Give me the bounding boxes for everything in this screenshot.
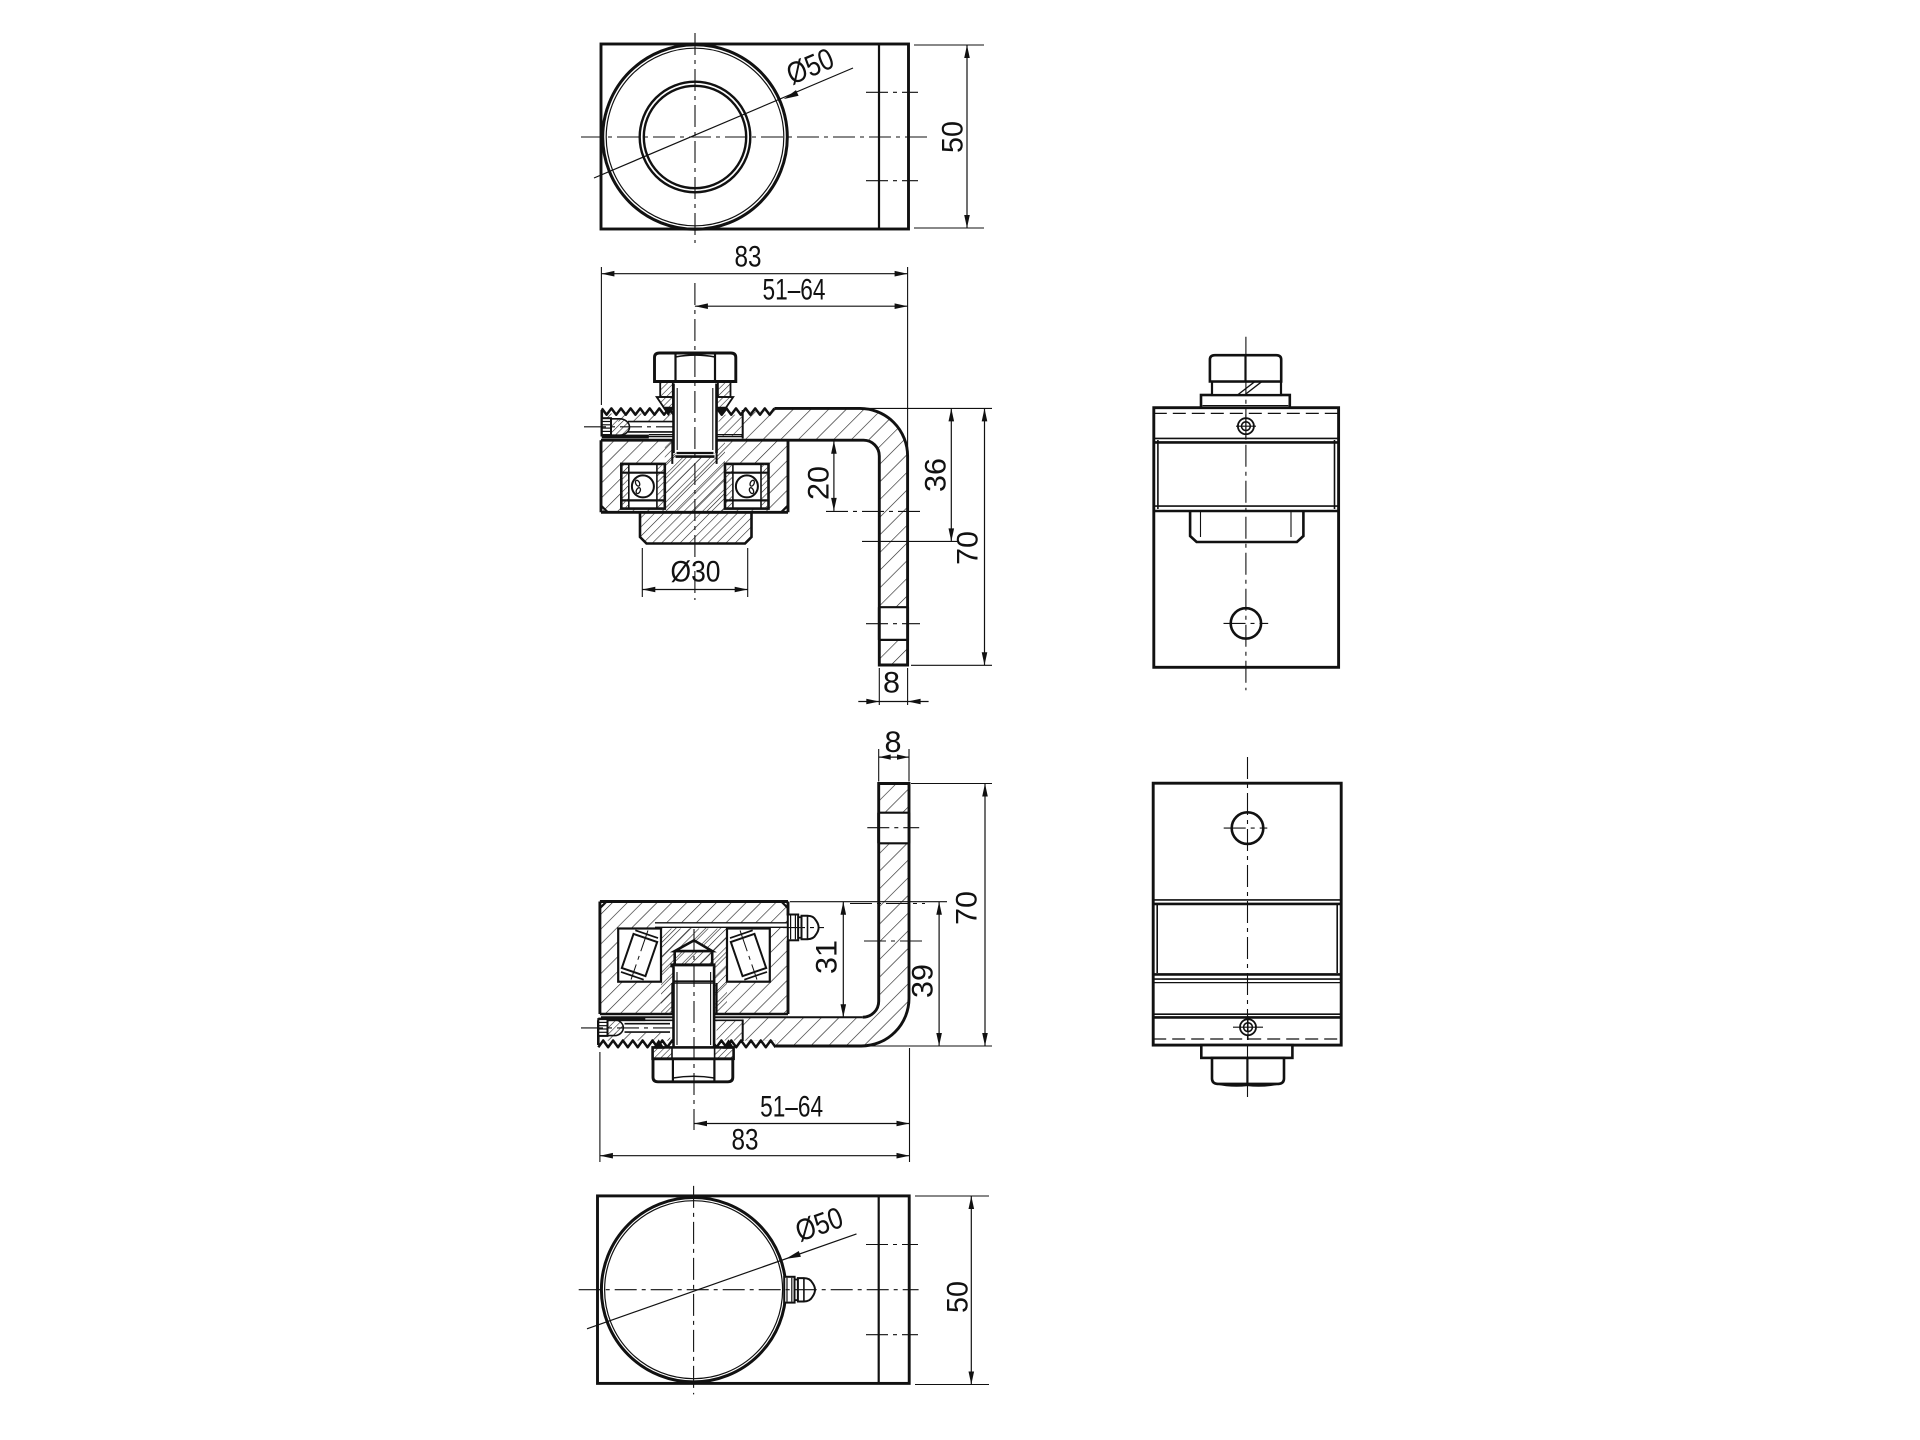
svg-text:70: 70 <box>952 531 985 565</box>
svg-text:31: 31 <box>811 940 844 974</box>
svg-text:50: 50 <box>942 1281 975 1313</box>
svg-text:36: 36 <box>920 458 953 492</box>
svg-text:8: 8 <box>885 726 902 759</box>
svg-text:8: 8 <box>883 667 900 700</box>
svg-text:20: 20 <box>803 466 836 500</box>
svg-text:39: 39 <box>907 964 940 998</box>
svg-text:Ø30: Ø30 <box>671 556 721 589</box>
svg-text:83: 83 <box>732 1124 759 1157</box>
svg-text:50: 50 <box>937 121 970 153</box>
svg-text:51–64: 51–64 <box>760 1091 823 1124</box>
svg-text:83: 83 <box>735 241 762 274</box>
svg-text:70: 70 <box>951 891 984 925</box>
svg-text:51–64: 51–64 <box>763 274 826 307</box>
